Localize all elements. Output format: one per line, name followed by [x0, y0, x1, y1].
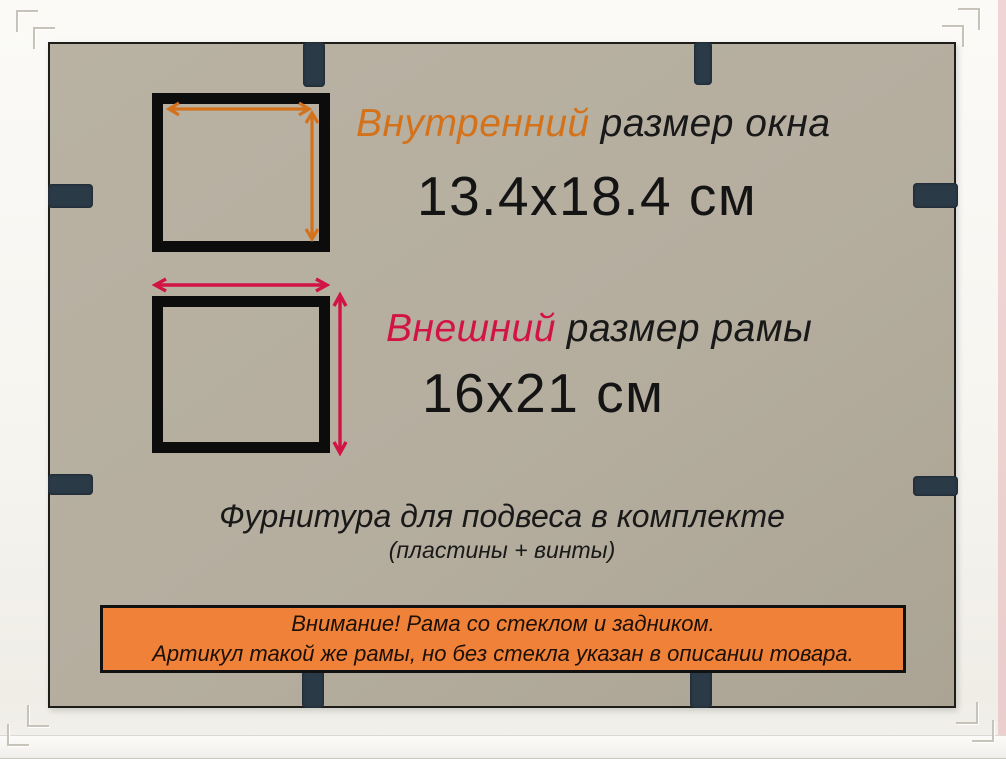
outer-size-value: 16x21 см: [422, 366, 664, 421]
double-arrow-horizontal-icon: [152, 276, 330, 294]
double-arrow-vertical-icon: [331, 292, 349, 456]
outer-size-label: Внешнийразмер рамы: [386, 309, 812, 348]
frame-clip-icon: [694, 42, 712, 85]
frame-corner-joint-icon: [7, 724, 29, 746]
frame-edge-tint: [998, 0, 1006, 758]
frame-clip-icon: [48, 184, 93, 208]
frame-bottom-bevel: [0, 735, 1006, 759]
outer-size-square: [152, 296, 330, 453]
double-arrow-horizontal-icon: [166, 100, 312, 118]
double-arrow-vertical-icon: [303, 110, 321, 242]
frame-clip-icon: [48, 474, 93, 495]
attention-banner: Внимание! Рама со стеклом и задником. Ар…: [100, 605, 906, 673]
frame-corner-joint-icon: [972, 720, 994, 742]
attention-banner-line2: Артикул такой же рамы, но без стекла ука…: [152, 639, 854, 669]
hardware-note: Фурнитура для подвеса в комплекте: [48, 498, 956, 535]
inner-size-label-highlight: Внутренний: [356, 102, 590, 145]
hardware-note-detail: (пластины + винты): [48, 537, 956, 564]
outer-size-label-highlight: Внешний: [386, 307, 556, 350]
inner-size-value: 13.4x18.4 см: [417, 169, 757, 224]
frame-product-image: Внутреннийразмер окна 13.4x18.4 см Внешн…: [0, 0, 1006, 759]
inner-size-label: Внутреннийразмер окна: [356, 104, 831, 143]
attention-banner-line1: Внимание! Рама со стеклом и задником.: [291, 609, 715, 639]
frame-clip-icon: [913, 183, 958, 208]
frame-corner-joint-icon: [27, 705, 49, 727]
outer-size-label-rest: размер рамы: [567, 307, 812, 350]
inner-size-label-rest: размер окна: [601, 102, 831, 145]
frame-clip-icon: [303, 42, 325, 87]
frame-clip-icon: [913, 476, 958, 496]
